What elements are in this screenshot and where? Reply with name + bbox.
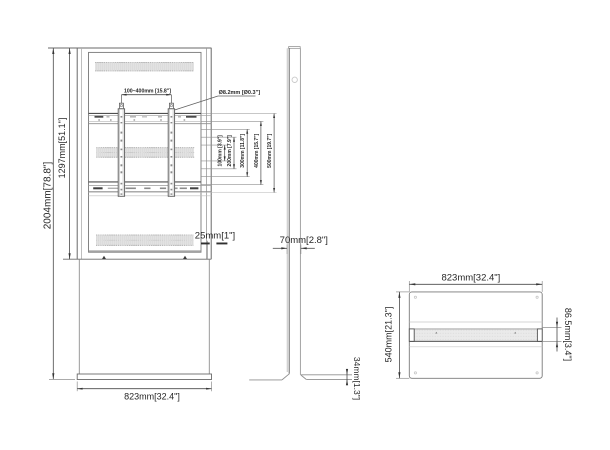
svg-text:823mm[32.4"]: 823mm[32.4"] [441,272,500,283]
svg-text:70mm[2.8"]: 70mm[2.8"] [280,235,328,246]
svg-text:34mm[1.3"]: 34mm[1.3"] [352,357,362,400]
svg-text:100mm [3.9"]: 100mm [3.9"] [218,135,224,167]
svg-text:823mm[32.4"]: 823mm[32.4"] [124,391,180,401]
svg-text:1297mm[51.1"]: 1297mm[51.1"] [57,118,67,179]
svg-text:2004mm[78.8"]: 2004mm[78.8"] [43,162,54,230]
svg-text:86.5mm[3.4"]: 86.5mm[3.4"] [563,308,573,361]
svg-text:500mm [19.7"]: 500mm [19.7"] [267,133,273,167]
svg-text:200mm [7.9"]: 200mm [7.9"] [227,135,233,167]
svg-text:300mm [11.8"]: 300mm [11.8"] [240,134,246,168]
svg-text:100~400mm [15.8"]: 100~400mm [15.8"] [124,89,171,95]
svg-text:25mm[1"]: 25mm[1"] [195,231,235,242]
svg-text:540mm[21.3"]: 540mm[21.3"] [383,307,393,363]
svg-text:400mm [15.7"]: 400mm [15.7"] [254,133,260,167]
svg-text:Ø8.2mm [Ø0.3"]: Ø8.2mm [Ø0.3"] [219,90,261,96]
